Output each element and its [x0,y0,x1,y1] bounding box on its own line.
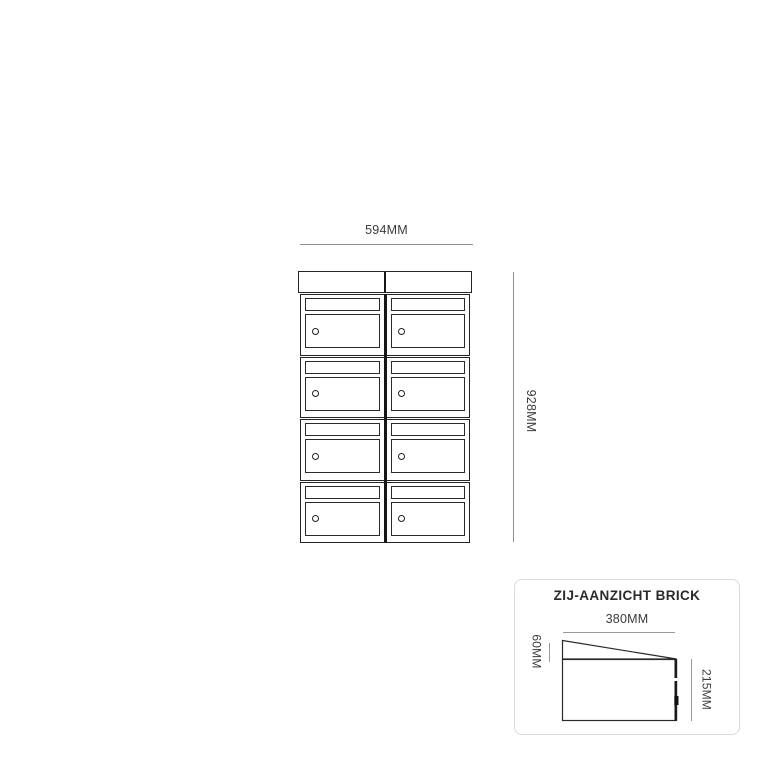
side-roof-height-dimension-line [549,643,550,662]
mailbox-door [305,377,380,411]
letter-slot [391,486,466,499]
mailbox-door [391,314,466,348]
letter-slot [391,298,466,311]
front-height-dimension-line [513,272,514,542]
mailbox-door [391,439,466,473]
letter-slot [305,361,380,374]
body-center-divider [384,294,387,543]
lock-cylinder-icon [312,453,319,460]
lock-cylinder-icon [312,390,319,397]
side-view-panel: ZIJ-AANZICHT BRICK 380MM 60MM 215MM [514,579,740,735]
mailbox-door [305,502,380,536]
cabinet-top-cap [298,271,472,293]
mailbox-module [386,294,471,356]
lock-cylinder-icon [398,328,405,335]
mailbox-door [305,314,380,348]
letter-slot [305,423,380,436]
side-roof-shape [563,641,677,660]
side-width-dimension-label: 380MM [515,612,739,627]
side-width-dimension-line [563,632,675,633]
mailbox-module [300,482,385,544]
technical-drawing-canvas: 594MM [0,0,768,768]
mailbox-module [386,482,471,544]
side-view-title: ZIJ-AANZICHT BRICK [515,588,739,603]
front-height-dimension-label: 928MM [523,386,539,436]
side-roof-height-dimension-label: 60MM [529,633,544,671]
mailbox-door [391,502,466,536]
mailbox-module [300,357,385,419]
mailbox-module [386,419,471,481]
lock-cylinder-icon [312,515,319,522]
lock-cylinder-icon [398,453,405,460]
lock-cylinder-icon [398,515,405,522]
letter-slot [305,486,380,499]
side-body-height-dimension-line [691,659,692,721]
front-width-dimension-line [300,244,473,245]
lock-cylinder-icon [312,328,319,335]
mailbox-door [391,377,466,411]
cap-center-divider [384,272,387,292]
mailbox-door [305,439,380,473]
mailbox-module [300,294,385,356]
mailbox-module [300,419,385,481]
side-body-shape [563,660,677,721]
mailbox-module [386,357,471,419]
letter-slot [391,361,466,374]
side-profile-drawing [555,635,705,725]
lock-cylinder-icon [398,390,405,397]
side-hinge-gap [674,678,678,681]
side-lock-icon [674,696,678,705]
side-body-height-dimension-label: 215MM [699,665,714,715]
front-width-dimension-label: 594MM [300,222,473,238]
letter-slot [305,298,380,311]
letter-slot [391,423,466,436]
